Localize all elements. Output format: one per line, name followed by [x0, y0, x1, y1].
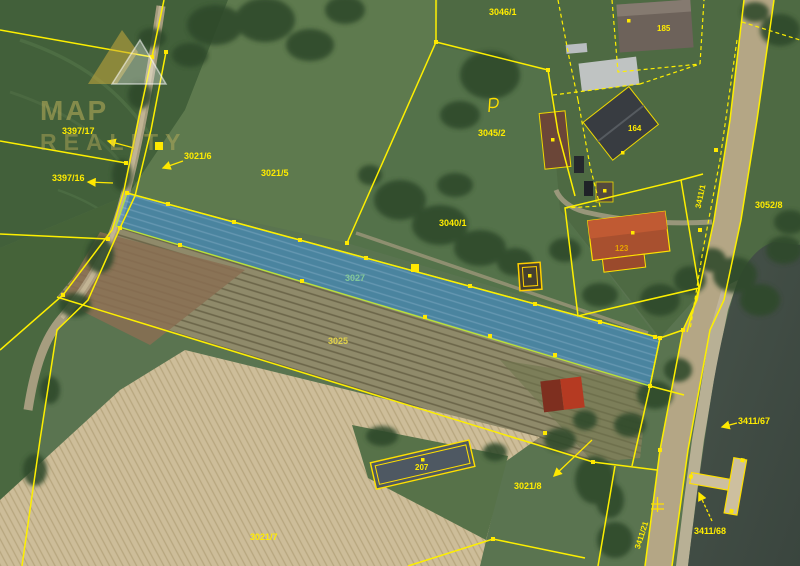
house-number-123: 123 — [615, 244, 629, 253]
parcel-label-3021-6: 3021/6 — [184, 151, 212, 161]
parked-car-dark — [574, 156, 584, 173]
parcel-label-3021-7: 3021/7 — [250, 532, 278, 542]
parked-car-dark2 — [584, 181, 593, 196]
watermark-title: MAP — [40, 95, 108, 126]
parcel-label-3025: 3025 — [328, 336, 348, 346]
building-red-shed — [540, 377, 584, 413]
parcel-label-3027-highlighted[interactable]: 3027 — [345, 273, 365, 283]
parcel-label-3021-8: 3021/8 — [514, 481, 542, 491]
parcel-label-3052-8: 3052/8 — [755, 200, 783, 210]
parcel-label-3411-67: 3411/67 — [738, 416, 770, 426]
house-number-164: 164 — [628, 124, 642, 133]
parcel-label-3040-1: 3040/1 — [439, 218, 467, 228]
parked-car — [566, 43, 588, 54]
parcel-label-3045-2: 3045/2 — [478, 128, 506, 138]
parcel-label-3046-1: 3046/1 — [489, 7, 517, 17]
house-number-207: 207 — [415, 463, 429, 472]
parcel-label-3021-5: 3021/5 — [261, 168, 289, 178]
cadastral-map-screenshot: 3397/17 3397/16 3021/6 3021/5 3040/1 304… — [0, 0, 800, 566]
cadastral-map-canvas[interactable]: 3397/17 3397/16 3021/6 3021/5 3040/1 304… — [0, 0, 800, 566]
watermark-subtitle: REALITY — [40, 129, 187, 155]
parcel-label-3411-68: 3411/68 — [694, 526, 726, 536]
house-number-185: 185 — [657, 24, 671, 33]
building-house-185 — [616, 0, 693, 53]
parcel-label-3397-16: 3397/16 — [52, 173, 85, 183]
